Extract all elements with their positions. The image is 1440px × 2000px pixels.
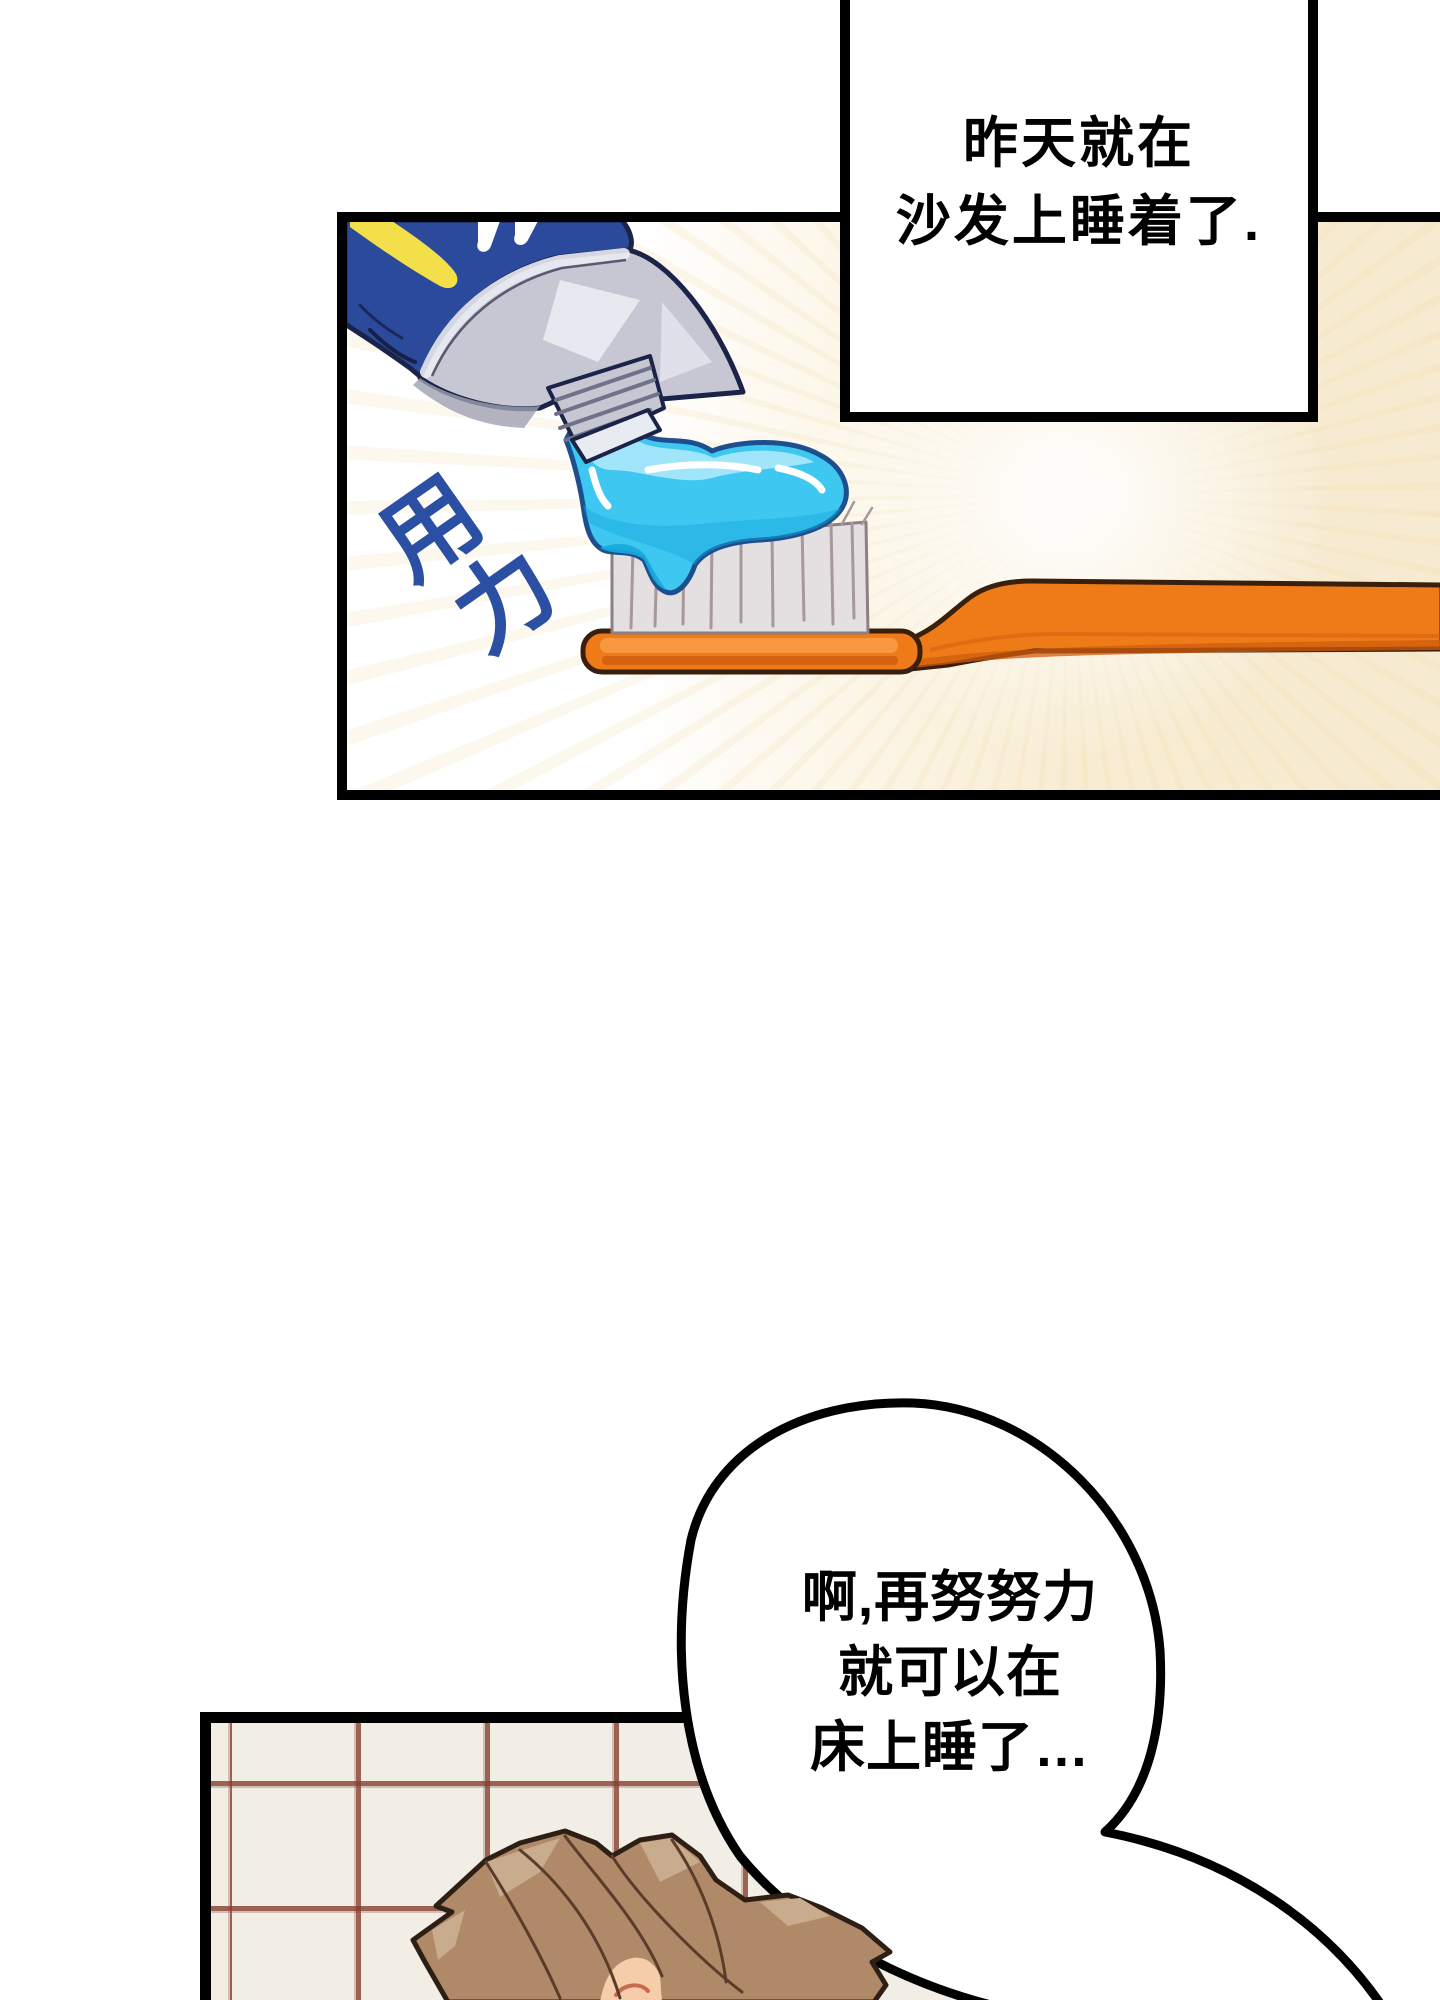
bubble1-line2: 沙发上睡着了. xyxy=(840,182,1318,260)
balloon-line1: 啊,再努努力 xyxy=(700,1560,1200,1635)
bubble1-line1: 昨天就在 xyxy=(840,104,1318,182)
balloon-line3: 床上睡了… xyxy=(700,1710,1200,1785)
speech-balloon-text: 啊,再努努力 就可以在 床上睡了… xyxy=(700,1560,1200,1785)
toothbrush-head-shadow xyxy=(602,656,898,665)
toothpaste-tube xyxy=(345,220,743,462)
speech-bubble-rect-text: 昨天就在 沙发上睡着了. xyxy=(840,104,1318,260)
comic-page: 昨天就在 沙发上睡着了. 用 力 啊,再努努力 就可以在 床上睡了… xyxy=(0,0,1440,2000)
balloon-line2: 就可以在 xyxy=(700,1635,1200,1710)
toothbrush-head-highlight xyxy=(600,638,898,653)
